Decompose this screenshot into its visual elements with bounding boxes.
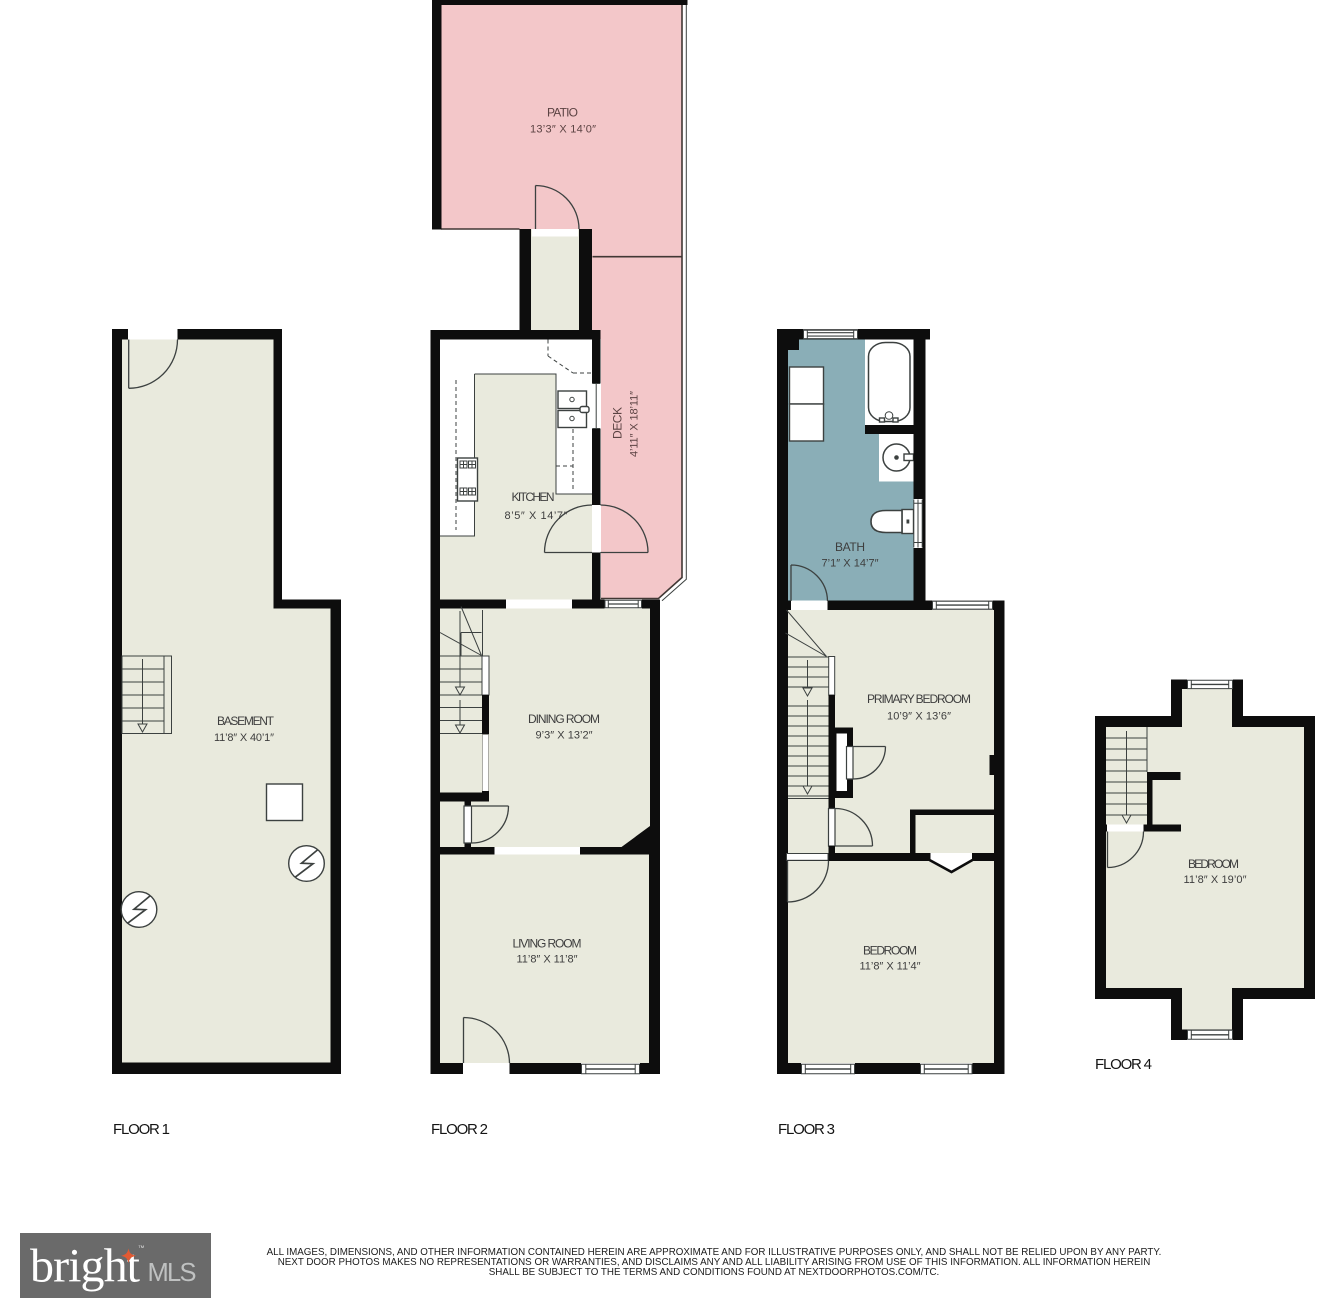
- svg-text:FLOOR 3: FLOOR 3: [778, 1121, 835, 1138]
- svg-text:DINING ROOM: DINING ROOM: [528, 712, 600, 726]
- svg-text:DECK: DECK: [611, 407, 625, 439]
- svg-text:10’9″ X 13’6″: 10’9″ X 13’6″: [887, 711, 951, 723]
- svg-text:FLOOR 2: FLOOR 2: [431, 1121, 488, 1138]
- svg-text:PRIMARY BEDROOM: PRIMARY BEDROOM: [867, 692, 971, 706]
- svg-text:11’8″ X 19’0″: 11’8″ X 19’0″: [1184, 874, 1247, 886]
- svg-text:FLOOR 1: FLOOR 1: [113, 1121, 170, 1138]
- svg-text:11’8″ X 11’8″: 11’8″ X 11’8″: [517, 954, 578, 966]
- svg-text:BATH: BATH: [835, 540, 865, 554]
- svg-text:11’8″ X 40’1″: 11’8″ X 40’1″: [214, 732, 274, 744]
- svg-text:FLOOR 4: FLOOR 4: [1095, 1056, 1152, 1073]
- svg-text:BASEMENT: BASEMENT: [217, 714, 275, 728]
- svg-text:™: ™: [138, 1245, 145, 1252]
- svg-text:8’5″ X 14’7″: 8’5″ X 14’7″: [505, 510, 568, 522]
- svg-text:9’3″ X 13’2″: 9’3″ X 13’2″: [536, 730, 593, 742]
- svg-text:13’3″ X 14’0″: 13’3″ X 14’0″: [530, 124, 596, 136]
- svg-text:7’1″ X 14’7″: 7’1″ X 14’7″: [822, 558, 879, 570]
- svg-text:BEDROOM: BEDROOM: [863, 944, 917, 958]
- svg-text:PATIO: PATIO: [547, 106, 578, 120]
- svg-text:BEDROOM: BEDROOM: [1188, 857, 1239, 871]
- svg-text:LIVING ROOM: LIVING ROOM: [513, 937, 582, 951]
- svg-text:4’11″ X 18’11″: 4’11″ X 18’11″: [629, 391, 641, 457]
- svg-text:11’8″ X 11’4″: 11’8″ X 11’4″: [860, 961, 921, 973]
- svg-text:bright: bright: [30, 1240, 141, 1293]
- svg-text:SHALL BE SUBJECT TO THE TERMS: SHALL BE SUBJECT TO THE TERMS AND CONDIT…: [489, 1267, 940, 1278]
- svg-text:KITCHEN: KITCHEN: [512, 490, 555, 504]
- svg-text:MLS: MLS: [148, 1259, 197, 1287]
